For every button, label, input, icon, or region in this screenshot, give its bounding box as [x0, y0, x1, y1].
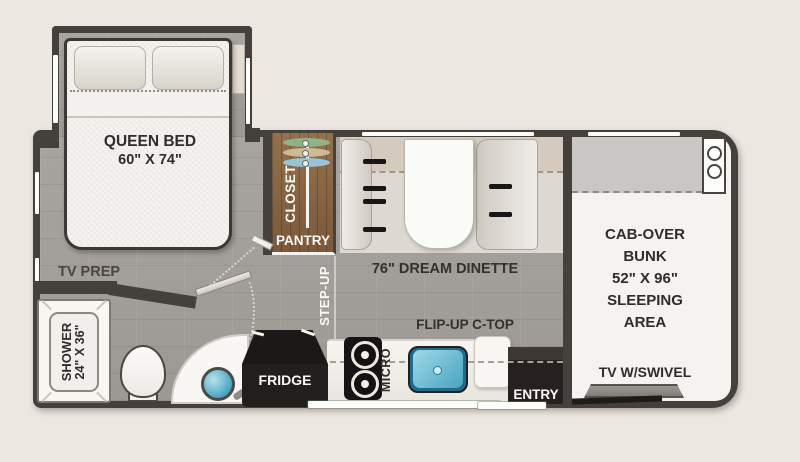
tv-prep-label: TV PREP	[58, 264, 168, 280]
bunk-label-line: SLEEPING	[575, 290, 715, 312]
window	[246, 58, 250, 124]
wall-corner-right	[245, 128, 260, 142]
pillow	[152, 46, 224, 90]
dinette-bench-right	[476, 139, 538, 250]
step-up-label: STEP-UP	[317, 266, 332, 326]
queen-bed-label-line2: 60" X 74"	[78, 153, 222, 169]
entry-step-top	[508, 347, 563, 360]
window	[35, 172, 40, 214]
bunk-label-line: 52" X 96"	[575, 268, 715, 290]
bunk-label-line: AREA	[575, 312, 715, 334]
entry-label: ENTRY	[509, 387, 563, 402]
wall-corner-left	[40, 137, 59, 148]
stove-burner-icon	[351, 341, 379, 369]
fridge-label: FRIDGE	[248, 372, 322, 388]
shower-label: SHOWER 24" X 36"	[49, 310, 99, 394]
cab-dash-area	[572, 137, 702, 193]
pantry-label: PANTRY	[270, 233, 336, 248]
step-up-label-wrap: STEP-UP	[313, 255, 335, 337]
queen-bed-label: QUEEN BED 60" X 74"	[78, 133, 222, 169]
hanger-hook-icon	[302, 140, 309, 147]
seatbelt-clip-icon	[363, 227, 385, 232]
rv-floorplan: QUEEN BED 60" X 74" TV PREP CLOSET PANTR…	[0, 0, 800, 462]
window	[53, 55, 58, 123]
stove-burner-icon	[351, 370, 379, 398]
pillow	[74, 46, 146, 90]
shower-label-line2: 24" X 36"	[74, 325, 88, 380]
micro-label-wrap: MICRO	[376, 338, 396, 402]
closet-label-wrap: CLOSET	[273, 152, 307, 236]
nightstand	[232, 44, 245, 94]
toilet	[120, 345, 166, 398]
seatbelt-clip-icon	[363, 186, 385, 191]
queen-bed-label-line1: QUEEN BED	[78, 133, 222, 150]
seatbelt-clip-icon	[363, 199, 385, 204]
seatbelt-clip-icon	[363, 159, 385, 164]
dinette-bench-left	[341, 139, 372, 250]
cup-holder-icon	[707, 164, 722, 179]
bunk-label-line: CAB-OVER	[575, 224, 715, 246]
flip-up-label: FLIP-UP C-TOP	[395, 317, 535, 332]
window	[362, 132, 534, 137]
shower-label-line1: SHOWER	[60, 323, 74, 382]
sink-drain-icon	[433, 366, 442, 375]
cup-holder-icon	[707, 146, 722, 161]
bunk-divider-wall	[563, 137, 572, 401]
bunk-label: CAB-OVER BUNK 52" X 96" SLEEPING AREA	[575, 224, 715, 334]
tv-swivel-label: TV W/SWIVEL	[575, 364, 715, 380]
micro-label: MICRO	[379, 348, 393, 392]
bathroom-sink	[201, 367, 235, 401]
seatbelt-clip-icon	[489, 184, 511, 189]
dinette-table	[404, 139, 474, 249]
bath-wall	[33, 281, 117, 294]
bed-fold	[67, 92, 229, 118]
dinette-label: 76" DREAM DINETTE	[355, 261, 535, 277]
entry-door-step	[478, 402, 546, 409]
window	[588, 132, 680, 137]
bunk-label-line: BUNK	[575, 246, 715, 268]
hanger-icon	[283, 138, 330, 147]
seatbelt-clip-icon	[489, 212, 511, 217]
slide-trim	[308, 401, 500, 408]
closet-label: CLOSET	[283, 165, 298, 223]
